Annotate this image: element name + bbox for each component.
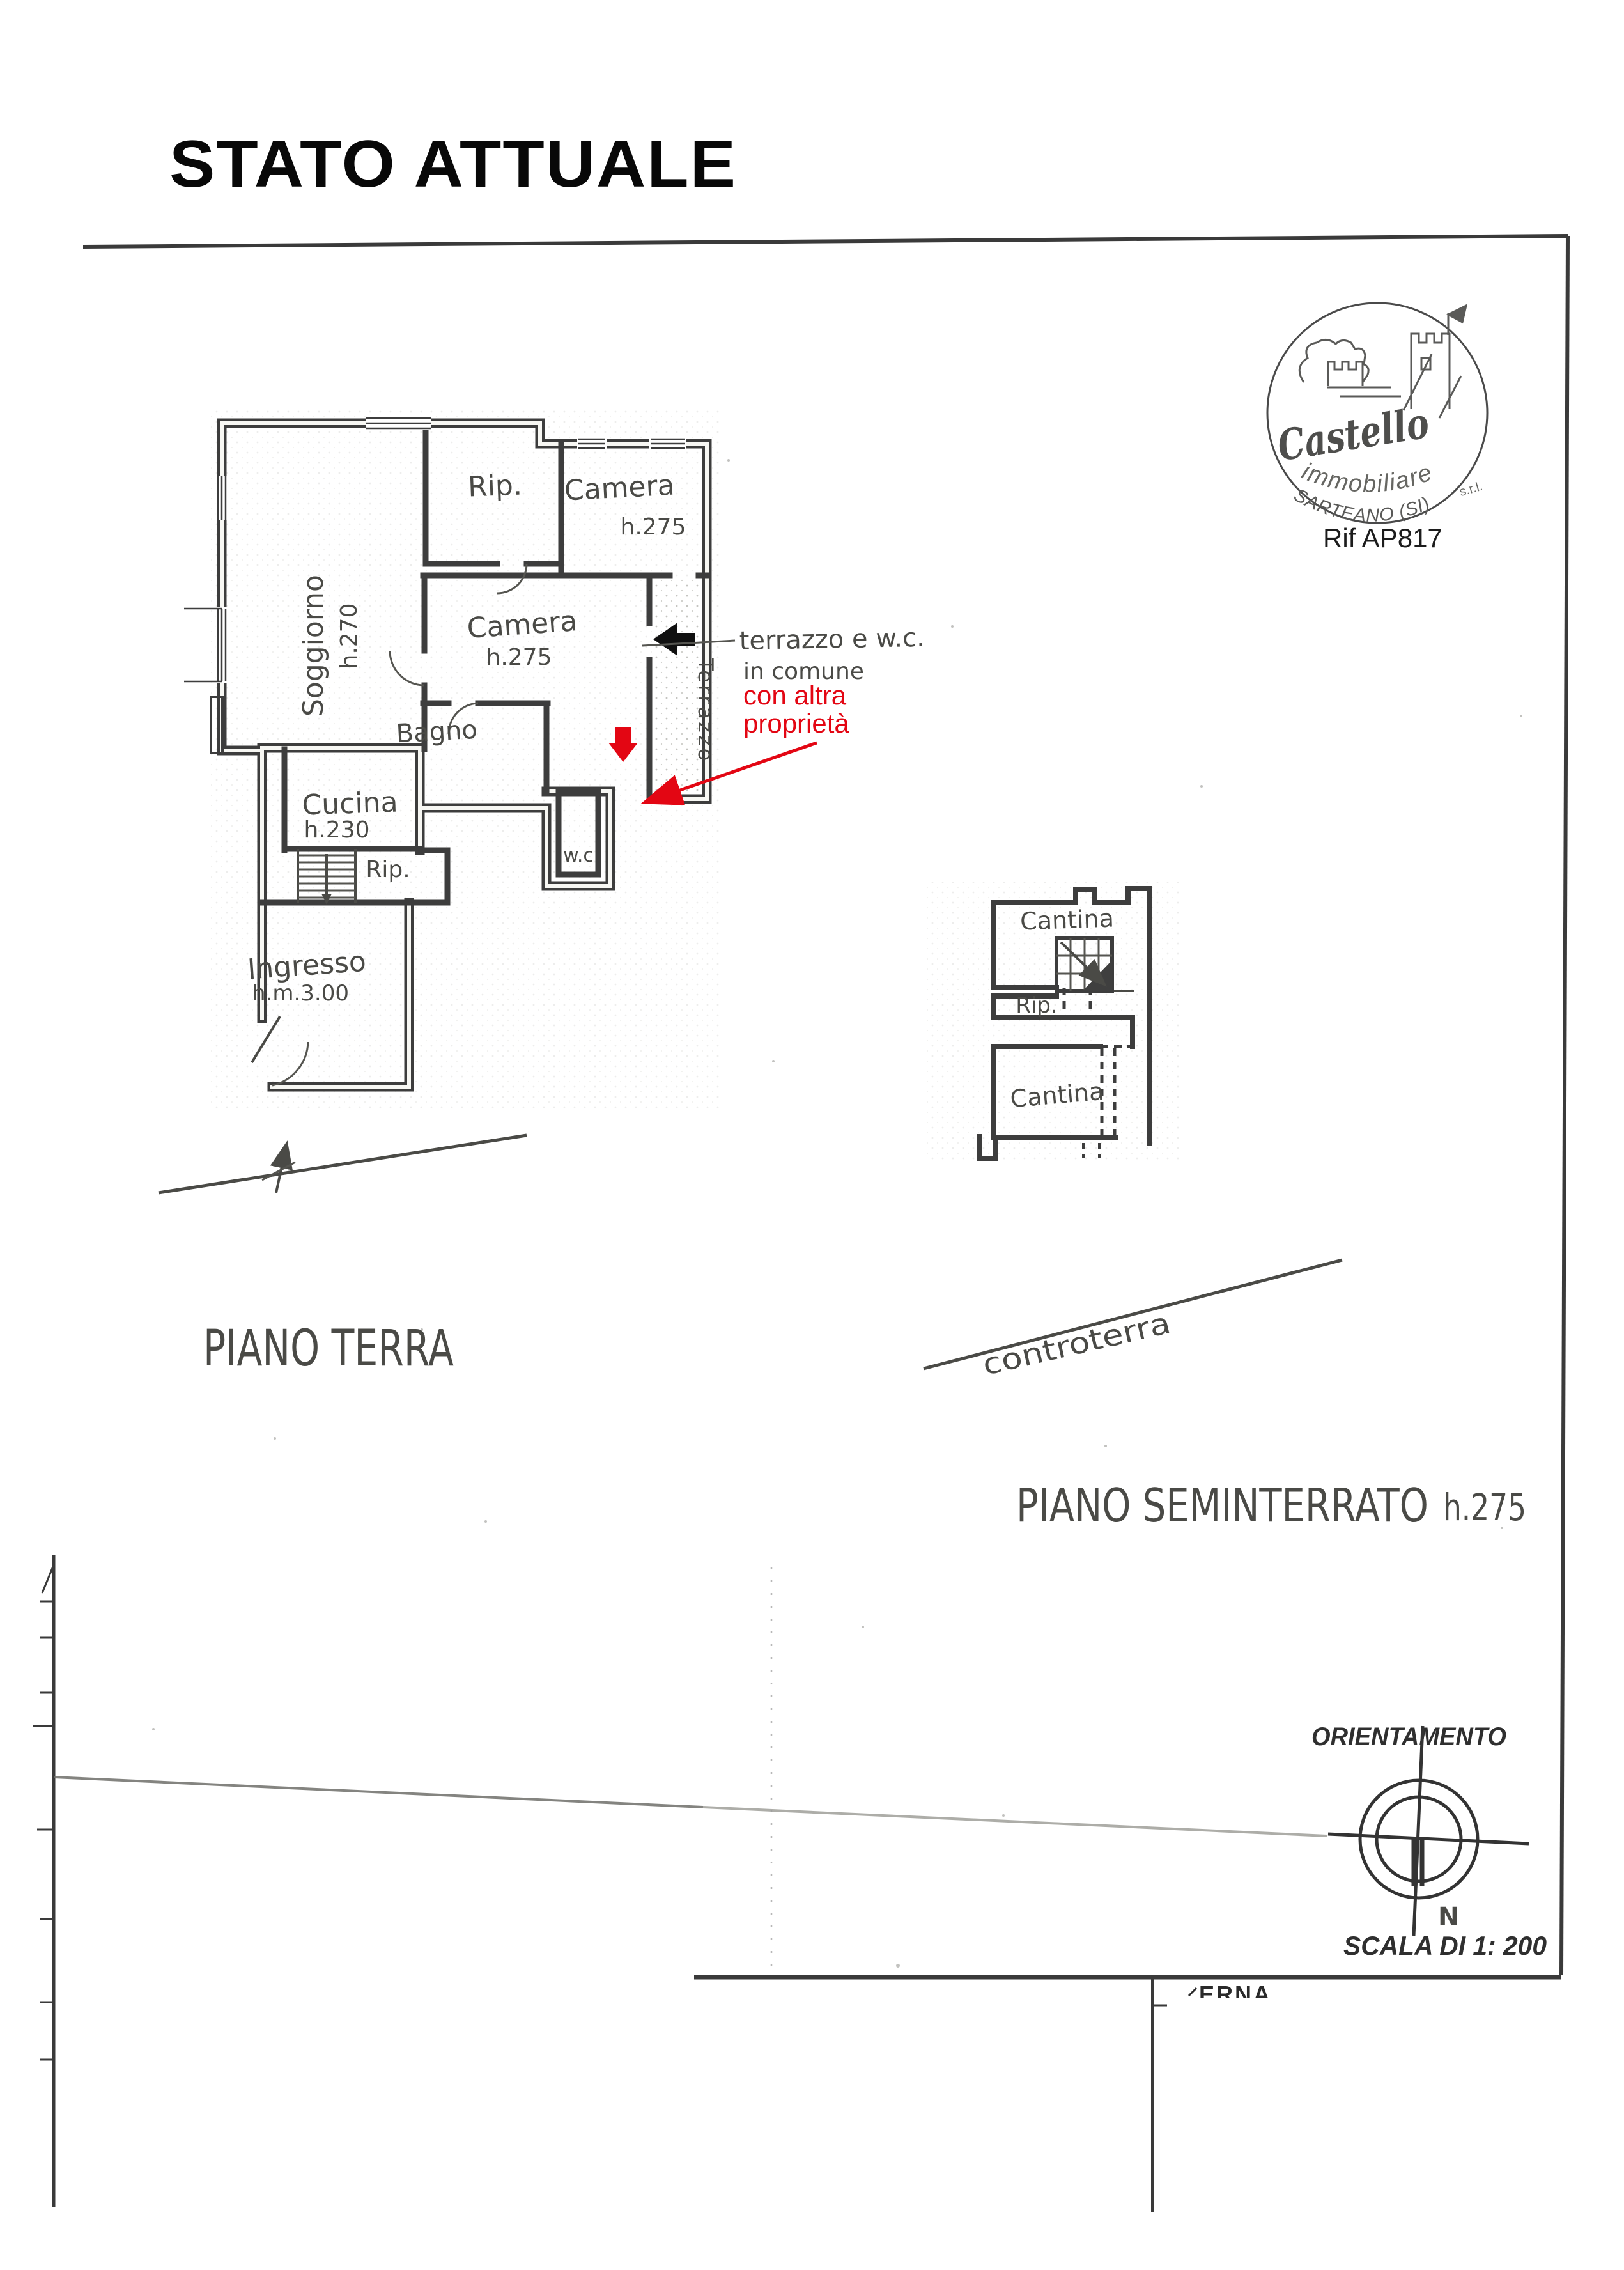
room-label-rip-top: Rip. [467,469,522,504]
red-annotation-line1: con altra [743,680,847,710]
room-label-camera-top-height: h.275 [621,514,686,540]
basement-label-text: PIANO SEMINTERRATO [1016,1479,1428,1532]
room-label-terrazzo: Terrazzo [693,658,718,763]
basement-ground-line: controterra [924,1260,1342,1382]
compass-north-label: N [1438,1902,1459,1932]
scale-label: SCALA DI 1: 200 [1343,1931,1547,1961]
stamp-brand-sub: immobiliare [1298,458,1437,498]
controterra-label: controterra [979,1305,1173,1382]
red-annotation-line2: proprietà [743,708,849,738]
slanted-boundary-line [54,1777,703,1807]
page-title: STATO ATTUALE [169,127,737,201]
reference-code: Rif AP817 [1323,523,1442,553]
street-boundary-line [159,1135,527,1193]
ground-floor-label: PIANO TERRA [203,1320,454,1378]
room-label-rip-basement: Rip. [1016,993,1057,1018]
compass-icon [1328,1726,1529,1936]
basement-label-height: h.275 [1443,1486,1526,1529]
room-label-camera-top: Camera [564,469,676,508]
scanned-floor-plan-page: STATO ATTUALE ERNA [0,0,1624,2270]
orientation-block: ORIENTAMENTO N SCALA DI 1: 200 [1311,1723,1547,1961]
ground-floor-plan: Soggiorno h.270 Rip. Camera h.275 Camera… [159,409,925,1378]
room-label-soggiorno-height: h.270 [336,603,362,669]
terrace-note-line1: terrazzo e w.c. [739,623,925,656]
basement-plan: Cantina Rip. Cantina controterra PIANO S… [924,882,1526,1532]
room-label-ingresso-height: h.m.3.00 [252,981,349,1006]
frame-tick-marks [33,1601,54,2060]
room-label-soggiorno: Soggiorno [297,575,330,717]
cutoff-text-fragment: ERNA [1199,1981,1272,2007]
room-label-cantina-top: Cantina [1019,904,1114,935]
basement-floor-label: PIANO SEMINTERRATO h.275 [1016,1479,1526,1532]
stamp-brand-script: Castello [1274,398,1432,470]
orientation-label: ORIENTAMENTO [1311,1723,1506,1751]
room-label-bagno: Bagno [396,715,478,749]
room-label-wc: w.c [563,844,594,867]
room-label-camera-mid-height: h.275 [486,644,552,671]
floor-plan-drawing: STATO ATTUALE ERNA [0,0,1624,2270]
room-label-rip-low: Rip. [366,857,410,883]
room-label-cucina-height: h.230 [304,817,370,843]
